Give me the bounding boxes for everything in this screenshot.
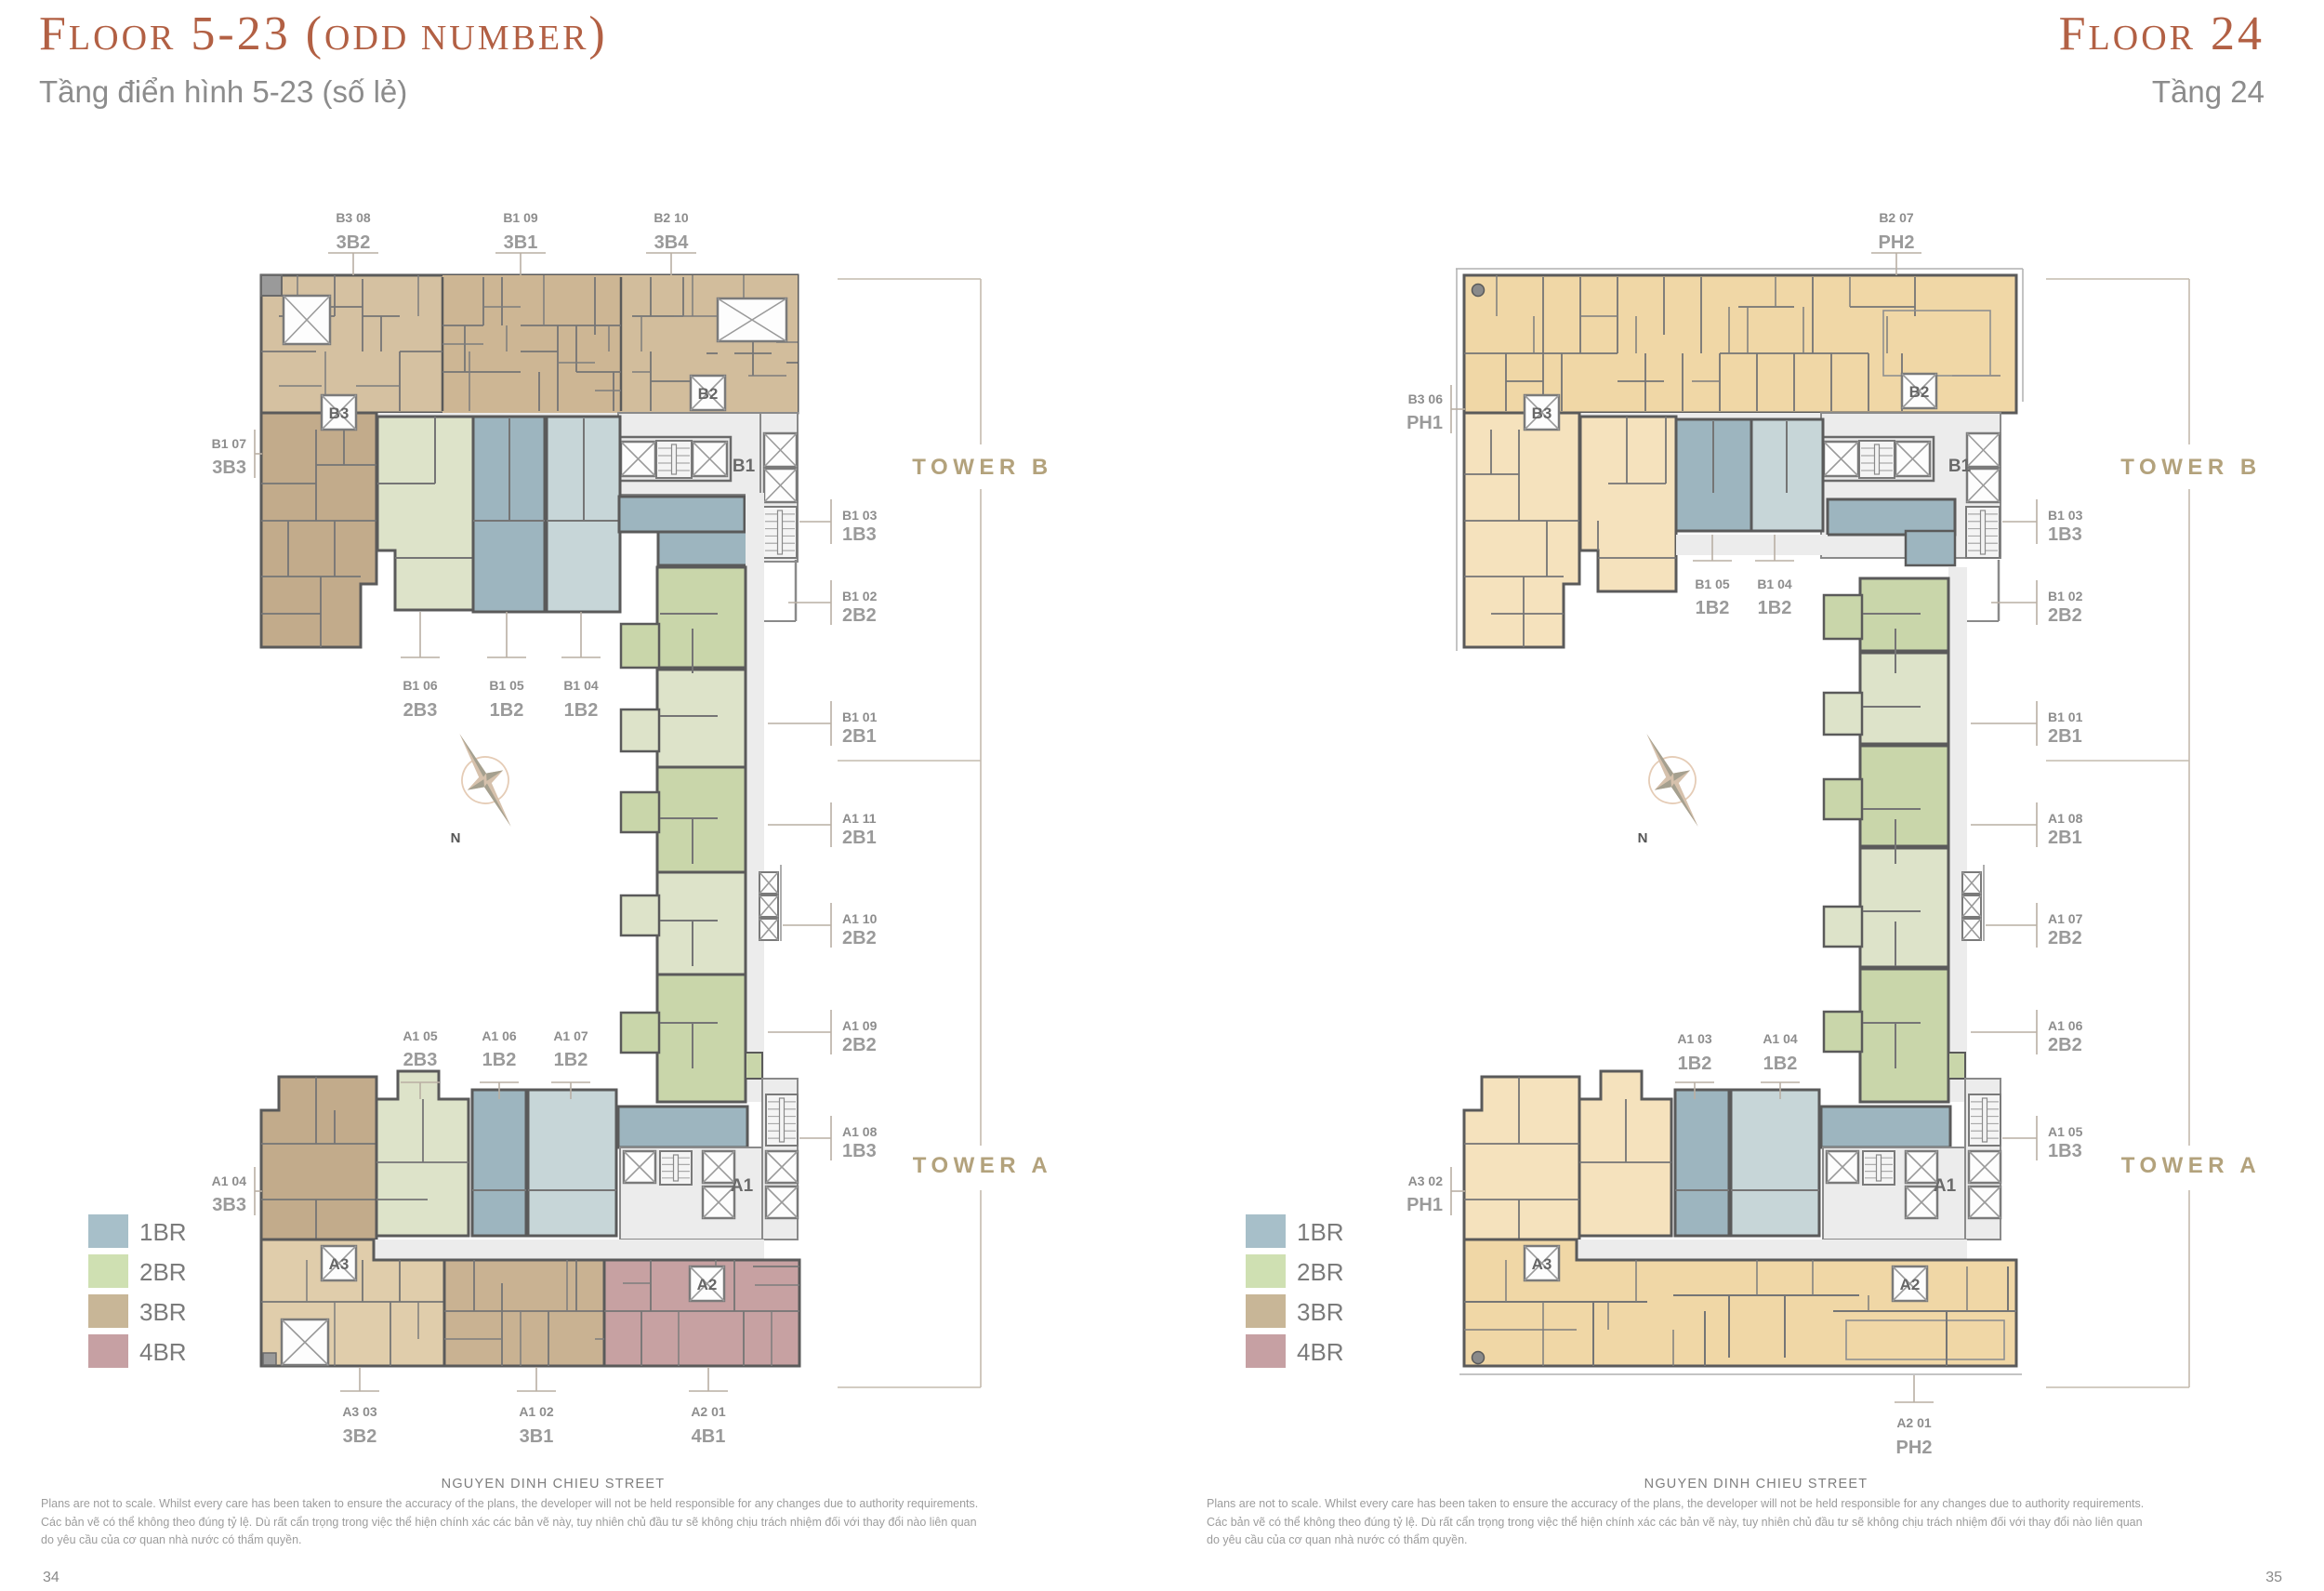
svg-text:B3: B3 (1532, 404, 1552, 422)
svg-text:B1 02: B1 02 (2048, 589, 2083, 603)
svg-text:1B2: 1B2 (554, 1050, 588, 1070)
svg-text:2B3: 2B3 (403, 1050, 438, 1070)
svg-text:3BR: 3BR (139, 1298, 187, 1326)
svg-text:2B2: 2B2 (2048, 1035, 2082, 1055)
svg-text:1B2: 1B2 (1678, 1054, 1712, 1074)
svg-text:B1 04: B1 04 (563, 678, 599, 693)
svg-text:TOWER A: TOWER A (913, 1153, 1053, 1178)
svg-text:A3: A3 (1532, 1255, 1552, 1273)
svg-text:A2: A2 (697, 1276, 718, 1293)
svg-text:2B2: 2B2 (2048, 605, 2082, 626)
svg-text:B2 10: B2 10 (654, 210, 689, 225)
svg-text:TOWER A: TOWER A (2121, 1153, 2262, 1178)
svg-text:B2: B2 (698, 385, 719, 403)
svg-text:A1 03: A1 03 (1677, 1031, 1712, 1046)
svg-text:B1 01: B1 01 (842, 709, 878, 724)
svg-text:1B2: 1B2 (1696, 598, 1730, 618)
svg-text:2B3: 2B3 (403, 700, 438, 721)
svg-text:B3: B3 (329, 404, 350, 422)
svg-text:TOWER B: TOWER B (2120, 455, 2261, 480)
svg-text:1B2: 1B2 (490, 700, 524, 721)
svg-text:A1 05: A1 05 (403, 1028, 438, 1043)
svg-text:N: N (1638, 830, 1648, 846)
svg-text:A1 02: A1 02 (519, 1404, 554, 1419)
svg-text:A2: A2 (1900, 1276, 1921, 1293)
svg-text:B1: B1 (733, 457, 756, 476)
svg-text:3B1: 3B1 (520, 1426, 554, 1447)
svg-text:1B3: 1B3 (2048, 1141, 2082, 1161)
svg-text:3B4: 3B4 (654, 232, 690, 253)
svg-text:PH2: PH2 (1896, 1438, 1933, 1458)
svg-text:NGUYEN DINH CHIEU STREET: NGUYEN DINH CHIEU STREET (1644, 1477, 1868, 1492)
svg-text:B3 06: B3 06 (1408, 391, 1444, 406)
svg-text:A1 11: A1 11 (842, 811, 877, 826)
svg-text:A3: A3 (329, 1255, 350, 1273)
svg-text:2BR: 2BR (1297, 1258, 1344, 1286)
svg-text:2B2: 2B2 (842, 605, 877, 626)
svg-text:Các bản vẽ có thể không theo đ: Các bản vẽ có thể không theo đúng tỷ lệ.… (41, 1516, 977, 1529)
svg-text:NGUYEN DINH CHIEU STREET: NGUYEN DINH CHIEU STREET (442, 1477, 666, 1492)
svg-text:B3 08: B3 08 (336, 210, 371, 225)
svg-text:Tầng 24: Tầng 24 (2152, 74, 2265, 109)
svg-text:A1 10: A1 10 (842, 911, 878, 926)
svg-text:Tầng điển hình 5-23 (số lẻ): Tầng điển hình 5-23 (số lẻ) (39, 74, 407, 109)
svg-text:3B2: 3B2 (337, 232, 371, 253)
svg-text:PH2: PH2 (1879, 232, 1915, 253)
svg-text:B1 05: B1 05 (1695, 577, 1730, 591)
svg-text:3B1: 3B1 (504, 232, 538, 253)
svg-text:2B1: 2B1 (2048, 726, 2082, 747)
svg-text:B1 03: B1 03 (2048, 508, 2083, 523)
svg-text:35: 35 (2265, 1570, 2282, 1585)
svg-text:4B1: 4B1 (692, 1426, 726, 1447)
svg-text:A2 01: A2 01 (691, 1404, 726, 1419)
svg-text:1B2: 1B2 (564, 700, 599, 721)
svg-text:4BR: 4BR (1297, 1338, 1344, 1366)
svg-text:TOWER B: TOWER B (912, 455, 1052, 480)
svg-text:B1 05: B1 05 (489, 678, 524, 693)
svg-text:A1 06: A1 06 (482, 1028, 517, 1043)
svg-text:3B3: 3B3 (212, 1195, 246, 1215)
svg-text:A3 03: A3 03 (342, 1404, 377, 1419)
svg-text:A1 05: A1 05 (2048, 1124, 2083, 1139)
svg-text:B1: B1 (1948, 457, 1972, 476)
svg-text:A1 06: A1 06 (2048, 1018, 2083, 1033)
svg-text:2B2: 2B2 (842, 928, 877, 948)
svg-text:1B3: 1B3 (2048, 524, 2082, 545)
svg-text:3B2: 3B2 (343, 1426, 377, 1447)
svg-text:A1 08: A1 08 (2048, 811, 2083, 826)
svg-text:PH1: PH1 (1406, 413, 1443, 433)
svg-text:3BR: 3BR (1297, 1298, 1344, 1326)
svg-text:Các bản vẽ có thể không theo đ: Các bản vẽ có thể không theo đúng tỷ lệ.… (1207, 1516, 2143, 1529)
svg-text:A1 08: A1 08 (842, 1124, 878, 1139)
svg-text:A1 04: A1 04 (1763, 1031, 1798, 1046)
svg-text:A1: A1 (731, 1176, 754, 1196)
svg-text:2B2: 2B2 (2048, 928, 2082, 948)
svg-text:2B1: 2B1 (842, 726, 877, 747)
svg-text:2B1: 2B1 (2048, 828, 2082, 848)
svg-text:B1 07: B1 07 (212, 436, 247, 451)
svg-text:3B3: 3B3 (212, 457, 246, 478)
svg-text:B1 01: B1 01 (2048, 709, 2083, 724)
svg-text:B2 07: B2 07 (1879, 210, 1914, 225)
svg-text:A1 04: A1 04 (212, 1173, 247, 1188)
svg-text:1B2: 1B2 (482, 1050, 517, 1070)
svg-text:2B1: 2B1 (842, 828, 877, 848)
svg-text:1B3: 1B3 (842, 524, 877, 545)
svg-text:A1 07: A1 07 (2048, 911, 2083, 926)
svg-text:B1 06: B1 06 (403, 678, 438, 693)
svg-text:N: N (451, 830, 461, 846)
svg-text:4BR: 4BR (139, 1338, 187, 1366)
svg-text:1B2: 1B2 (1758, 598, 1792, 618)
svg-text:B1 02: B1 02 (842, 589, 878, 603)
svg-text:1B2: 1B2 (1763, 1054, 1798, 1074)
svg-text:A1 09: A1 09 (842, 1018, 878, 1033)
svg-text:1BR: 1BR (139, 1218, 187, 1246)
svg-text:1BR: 1BR (1297, 1218, 1344, 1246)
svg-text:B1 09: B1 09 (503, 210, 538, 225)
svg-text:PH1: PH1 (1406, 1195, 1443, 1215)
svg-text:A3 02: A3 02 (1408, 1173, 1444, 1188)
svg-text:Plans are not to scale. Whilst: Plans are not to scale. Whilst every car… (41, 1497, 978, 1510)
svg-text:1B3: 1B3 (842, 1141, 877, 1161)
svg-text:34: 34 (43, 1570, 59, 1585)
svg-text:B2: B2 (1909, 383, 1930, 401)
svg-text:A1 07: A1 07 (553, 1028, 588, 1043)
svg-text:Plans are not to scale. Whilst: Plans are not to scale. Whilst every car… (1207, 1497, 2144, 1510)
svg-text:A1: A1 (1934, 1176, 1957, 1196)
svg-text:B1 03: B1 03 (842, 508, 878, 523)
svg-text:do yêu cầu của cơ quan nhà nướ: do yêu cầu của cơ quan nhà nước có thẩm … (1207, 1533, 1468, 1546)
svg-text:A2 01: A2 01 (1896, 1415, 1932, 1430)
svg-text:B1 04: B1 04 (1757, 577, 1792, 591)
svg-text:do yêu cầu của cơ quan nhà nướ: do yêu cầu của cơ quan nhà nước có thẩm … (41, 1533, 302, 1546)
svg-text:2B2: 2B2 (842, 1035, 877, 1055)
svg-text:2BR: 2BR (139, 1258, 187, 1286)
